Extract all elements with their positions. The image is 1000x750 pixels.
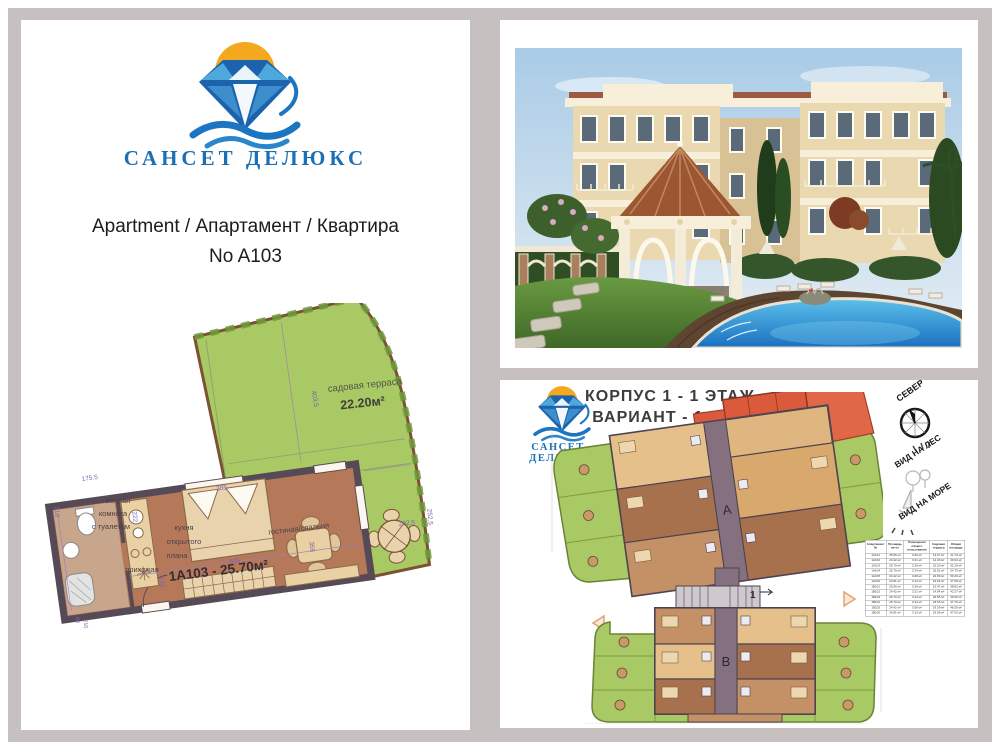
table-row: 1B10624.81 м²3.13 м²19.59 м²47.53 м² [865,611,965,616]
svg-text:252.5: 252.5 [425,508,433,525]
table-header-cell: Помещения общего пользования [904,540,930,553]
svg-text:605: 605 [229,557,241,565]
tree-icon [906,470,930,492]
apartment-floorplan: садовая терраса 22.20м² 1А103 - 25.70м² … [29,303,465,648]
table-header-cell: Площадь нетто [886,540,904,553]
table-cell: 19.59 м² [930,611,947,616]
apartment-table: Апартамент №Площадь неттоПомещения общег… [865,540,965,616]
svg-text:открытого: открытого [167,537,202,546]
table-header-cell: Апартамент № [865,540,886,553]
svg-text:комната: комната [99,509,128,518]
svg-text:292.5: 292.5 [398,519,415,527]
block-b: B [592,608,876,722]
title-line-1: Apartment / Апартамент / Квартира [21,212,470,242]
svg-text:133: 133 [157,576,165,588]
compass-label: СЕВЕР [894,380,925,404]
svg-text:90: 90 [74,617,81,624]
table-cell: 1B106 [865,611,886,616]
svg-text:с туалетом: с туалетом [92,522,130,531]
floor-plan-panel: САНСЕТ ДЕЛЮКС КОРПУС 1 - 1 ЭТАЖ ВАРИАНТ … [500,380,978,728]
entry-arrow [844,592,855,606]
table-header-row: Апартамент №Площадь неттоПомещения общег… [865,540,965,553]
svg-text:210: 210 [52,506,60,518]
sea-rays [892,528,913,535]
brochure-page: { "brand": { "name": "САНСЕТ ДЕЛЮКС" }, … [0,0,1000,750]
svg-text:ванная: ванная [106,496,131,505]
entrance-label: 1 [750,590,756,601]
svg-text:плана: плана [167,551,189,560]
page-title: Apartment / Апартамент / Квартира No A10… [21,212,470,272]
svg-text:прихожая: прихожая [125,565,158,574]
table-header-cell: Общая площадь [947,540,965,553]
shower-icon [64,572,95,607]
svg-text:кухня: кухня [174,523,193,532]
title-line-2: No A103 [21,242,470,272]
block-b-label: B [722,654,731,669]
building-photo [515,48,962,348]
table-cell: 24.81 м² [886,611,904,616]
brand-name: САНСЕТ ДЕЛЮКС [21,146,470,171]
apartment-panel: САНСЕТ ДЕЛЮКС Apartment / Апартамент / К… [21,20,470,730]
table-cell: 47.53 м² [947,611,965,616]
svg-text:222: 222 [130,511,138,523]
apartment-table-body: 1A10125.06 м²3.29 м²13.27 м²41.73 м²1A10… [865,553,965,616]
table-cell: 3.13 м² [904,611,930,616]
orientation-legend: СЕВЕР ВИД НА ЛЕС ВИД НА МОРЕ [875,380,978,535]
svg-text:175.5: 175.5 [81,474,98,483]
bed-icon [182,479,275,562]
table-header-cell: Садовая терраса [930,540,947,553]
svg-text:355: 355 [307,541,315,553]
compass-icon [901,409,929,437]
brand-logo [185,38,305,150]
cypress-tree [775,158,791,238]
svg-text:210: 210 [82,619,89,629]
korpus-plan: A 1 [538,392,883,724]
cypress-tree [757,140,777,236]
photo-panel [500,20,978,368]
